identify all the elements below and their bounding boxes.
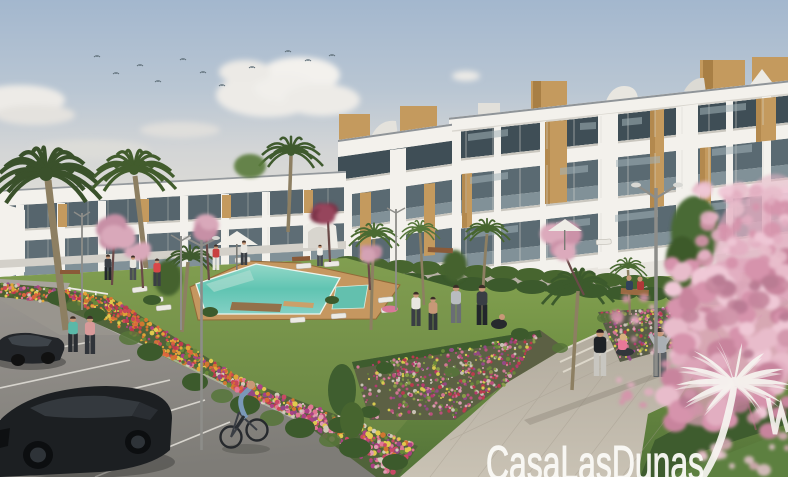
svg-text:CasaLasDunas: CasaLasDunas bbox=[486, 437, 704, 477]
